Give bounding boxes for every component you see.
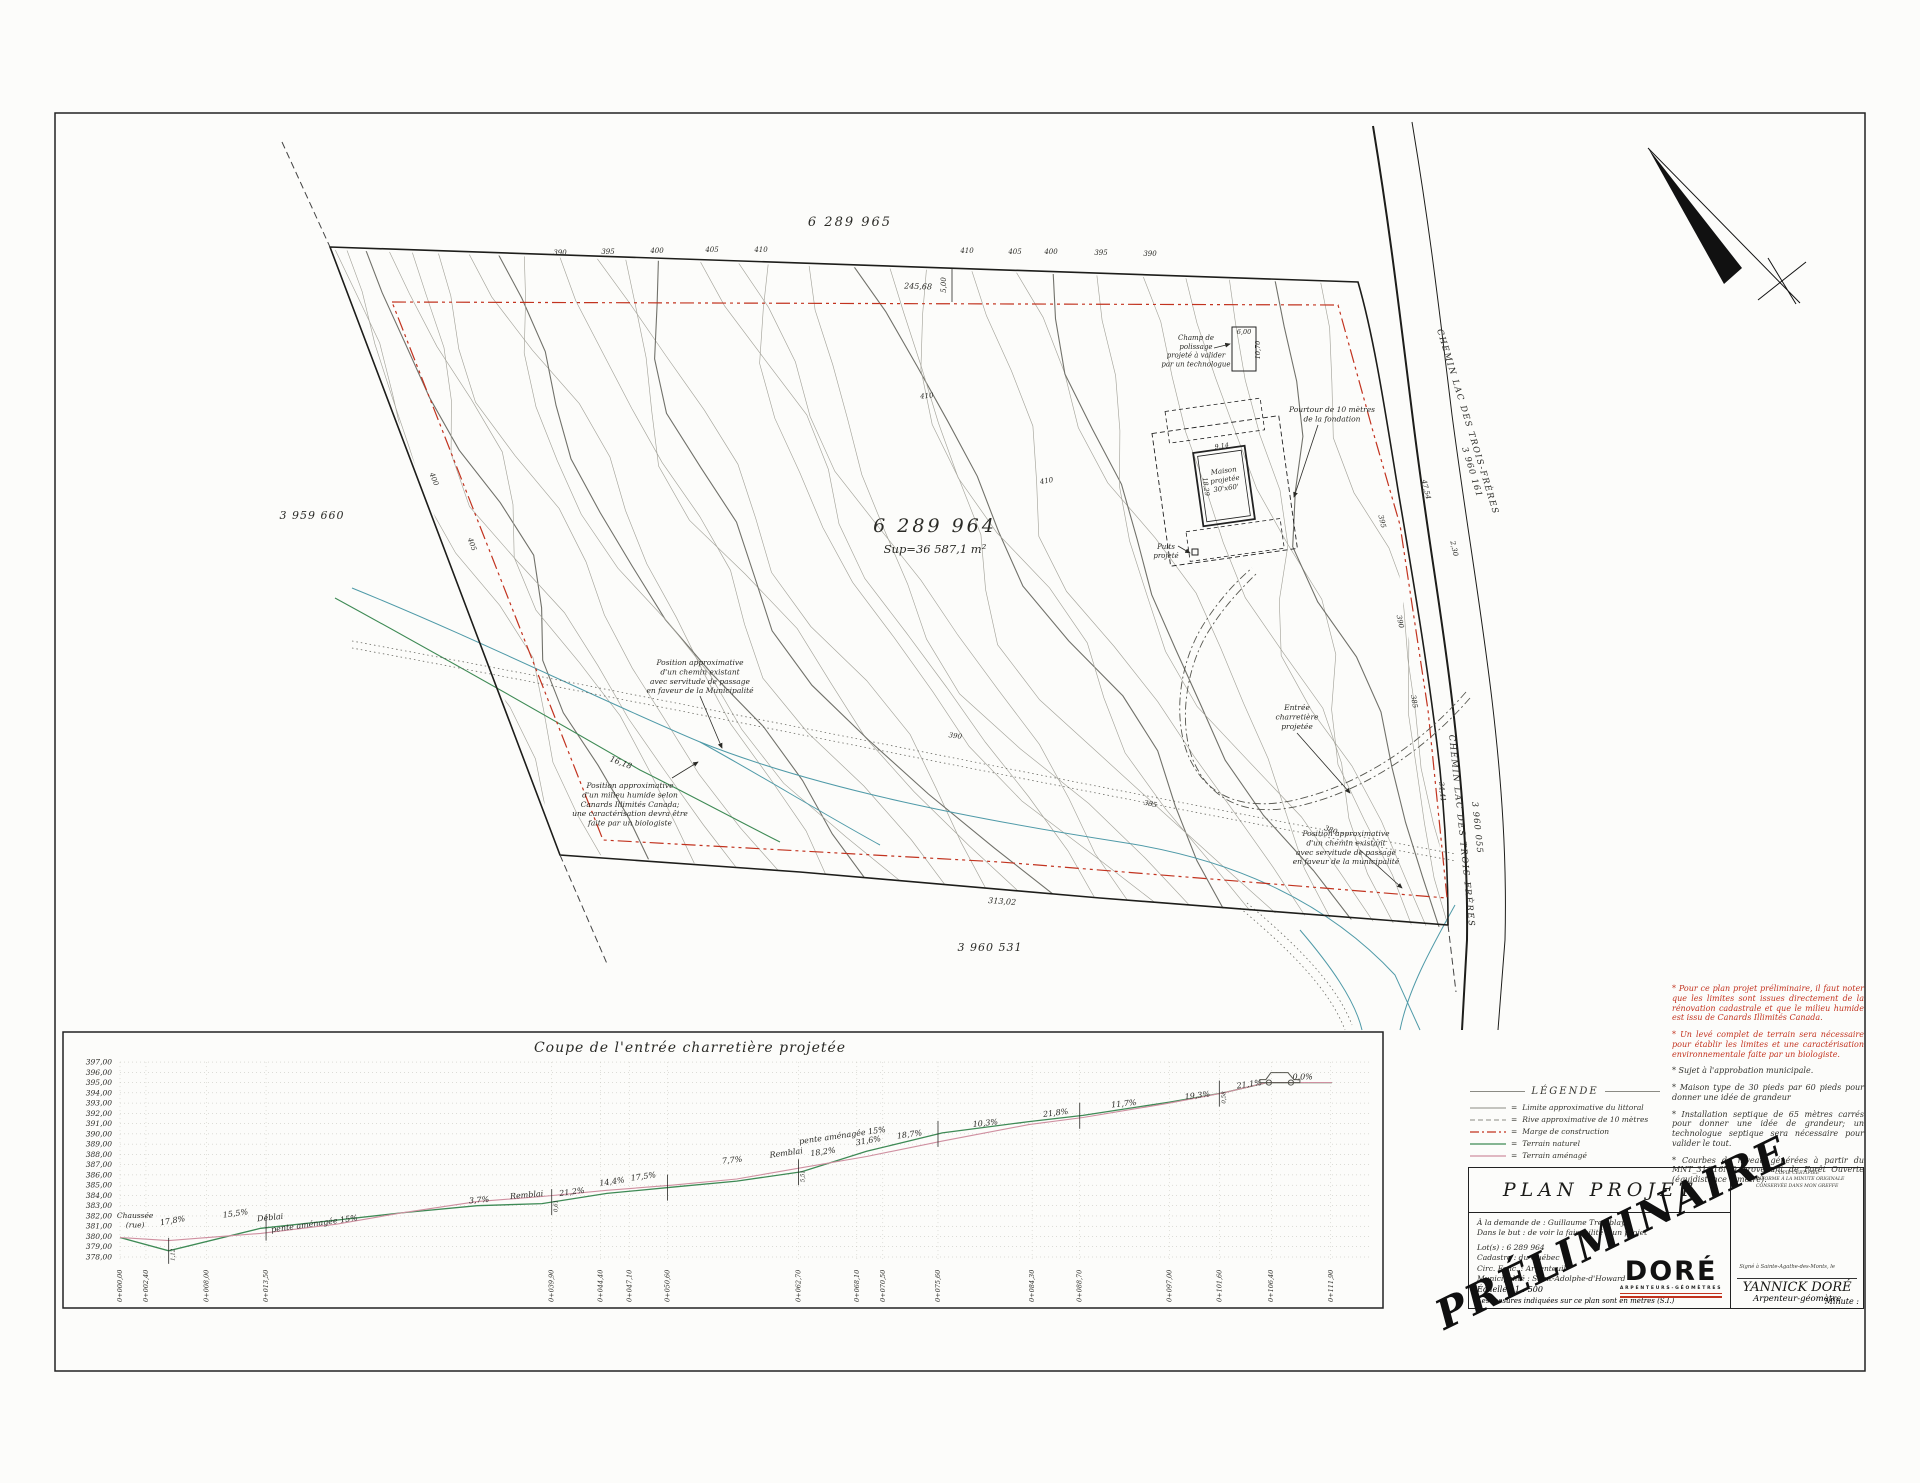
slope-label: 21,1% (1235, 1078, 1263, 1091)
legend-equals: = (1511, 1151, 1517, 1160)
contour-elevation-label: 390 (553, 249, 567, 257)
station-label: 0+039,90 (548, 1270, 556, 1302)
legend-swatch (1470, 1105, 1506, 1111)
slope-label: pente aménagée 15% (270, 1213, 358, 1234)
label-projected-house: Maisonprojetée30'x60' (1209, 465, 1242, 494)
profile-title: Coupe de l'entrée charretière projetée (534, 1040, 846, 1056)
contour-elevation-label: 400 (427, 471, 440, 488)
y-axis-label: 381,00 (86, 1222, 112, 1231)
contour-elevation-label: 405 (465, 536, 478, 553)
note-polishing-field: Champ depolissageprojeté à validerpar un… (1161, 334, 1230, 368)
streams (352, 588, 1455, 1030)
contour-elevation-label: 390 (1395, 614, 1406, 629)
note-red: * Pour ce plan projet préliminaire, il f… (1672, 984, 1864, 1023)
y-axis-label: 379,00 (86, 1242, 112, 1251)
dimension-label: 6,00 (1237, 328, 1251, 336)
dimension-label: 18,29 (1201, 477, 1212, 497)
slope-label: 18,2% (810, 1146, 837, 1159)
legend-swatch (1470, 1153, 1506, 1159)
title-block-left: PLAN PROJET À la demande de : Guillaume … (1469, 1168, 1731, 1308)
leader-arrows (672, 344, 1402, 888)
logo-text: DORÉ (1620, 1258, 1722, 1285)
slope-label: Remblai (768, 1146, 804, 1160)
station-label: 0+000,00 (116, 1270, 124, 1302)
title-block-right: COPIE CERTIFIÉE CONFORME À LA MINUTE ORI… (1731, 1168, 1863, 1308)
dimension-label: 16,18 (609, 754, 634, 771)
info-lot: Lot(s) : 6 289 964 (1477, 1243, 1730, 1253)
y-axis-label: 395,00 (86, 1078, 112, 1087)
dimension-label: 245,68 (903, 281, 932, 291)
y-axis-label: 396,00 (86, 1068, 112, 1077)
note: * Installation septique de 65 mètres car… (1672, 1110, 1864, 1149)
lot-label-3960531: 3 960 531 (958, 941, 1023, 954)
legend: LÉGENDE =Limite approximative du littora… (1470, 1086, 1660, 1163)
survey-plan-sheet: 6 289 9656 289 964Sup=36 587,1 m²3 959 6… (0, 0, 1920, 1483)
contour-elevation-label: 405 (1007, 248, 1022, 256)
slope-label: 15,5% (222, 1207, 249, 1220)
slope-label: 10,3% (972, 1117, 999, 1129)
well-symbol (1192, 549, 1198, 555)
profile-chart: Coupe de l'entrée charretière projetée37… (86, 1040, 1372, 1302)
y-axis-label: 390,00 (86, 1129, 112, 1138)
y-axis-label: 382,00 (86, 1211, 112, 1220)
y-axis-label: 388,00 (86, 1150, 112, 1159)
contour-elevation-label: 405 (704, 246, 719, 254)
station-label: 0+075,60 (934, 1270, 942, 1302)
legend-equals: = (1511, 1139, 1517, 1148)
legend-swatch (1470, 1141, 1506, 1147)
note-well: Puitsprojeté (1153, 543, 1178, 560)
contour-elevation-label: 395 (601, 248, 615, 256)
station-label: 0+002,40 (142, 1270, 150, 1302)
contour-elevation-label: 385 (1409, 694, 1419, 709)
dimension-label: 313,02 (988, 896, 1017, 907)
north-arrow-icon (1648, 148, 1806, 304)
note-existing-road-south: Position approximatived'un chemin exista… (1293, 829, 1400, 866)
station-label: 0+062,70 (794, 1270, 802, 1302)
station-label: 0+088,70 (1076, 1270, 1084, 1302)
projected-driveway (1180, 568, 1470, 810)
title-block: PLAN PROJET À la demande de : Guillaume … (1468, 1167, 1864, 1309)
y-axis-label: 387,00 (86, 1160, 112, 1169)
dimension-label: 2,30 (1448, 539, 1459, 557)
logo-subtext: ARPENTEURS-GÉOMÈTRES (1620, 1286, 1722, 1291)
dimension-label: 34,41 (1437, 781, 1447, 802)
legend-swatch (1470, 1129, 1506, 1135)
station-label: 0+044,40 (596, 1270, 604, 1302)
contour-elevation-label: 410 (1038, 476, 1054, 486)
contour-elevation-label: 410 (753, 246, 768, 254)
slope-label: 17,8% (159, 1214, 186, 1227)
contour-elevation-label: 395 (1094, 249, 1108, 257)
y-axis-label: 392,00 (86, 1109, 112, 1118)
slope-label: 7,7% (722, 1155, 744, 1166)
contour-elevation-label: 400 (1043, 248, 1058, 256)
note-driveway: Entréecharretièreprojetée (1276, 703, 1320, 731)
info-client: À la demande de : Guillaume Tremblay (1477, 1218, 1730, 1228)
map-labels: 6 289 9656 289 964Sup=36 587,1 m²3 959 6… (280, 215, 1503, 954)
slope-label: Remblai (509, 1189, 544, 1201)
plan-scale: Échelle : 1 : 500 (1477, 1285, 1543, 1294)
station-label: 0+013,50 (262, 1270, 270, 1302)
station-label: 0+047,10 (626, 1270, 634, 1302)
plan-title: PLAN PROJET (1469, 1168, 1730, 1213)
legend-equals: = (1511, 1127, 1517, 1136)
slope-label: 3,7% (469, 1195, 490, 1205)
contour-elevation-label: 400 (649, 247, 664, 255)
legend-title: LÉGENDE (1470, 1086, 1660, 1097)
dimension-label: 5,00 (940, 277, 948, 293)
contour-elevation-label: 395 (1376, 514, 1387, 529)
info-purpose: Dans le but : de voir la faisabilité d'u… (1477, 1228, 1730, 1238)
slope-label: 19,3% (1184, 1089, 1211, 1101)
contour-elevation-label: 410 (959, 247, 974, 255)
green-boundary-line (335, 598, 780, 842)
slope-label: 17,5% (630, 1170, 657, 1183)
certification-text: COPIE CERTIFIÉE CONFORME À LA MINUTE ORI… (1731, 1171, 1863, 1190)
legend-equals: = (1511, 1115, 1517, 1124)
y-axis-label: 397,00 (86, 1058, 112, 1067)
station-label: 0+070,50 (879, 1270, 887, 1302)
contour-line (409, 242, 744, 878)
boundary-extensions (282, 142, 1456, 992)
legend-item: =Terrain naturel (1470, 1139, 1660, 1148)
y-axis-label: 378,00 (86, 1253, 112, 1262)
lot-label-3959660: 3 959 660 (280, 509, 345, 522)
y-axis-label: 393,00 (86, 1099, 112, 1108)
road-name-upper: CHEMIN LAC DES TROIS-FRÈRES (1434, 327, 1502, 516)
legend-label: Rive approximative de 10 mètres (1522, 1115, 1648, 1124)
note: * Maison type de 30 pieds par 60 pieds p… (1672, 1083, 1864, 1103)
grade-break-value: 5,51 (800, 1170, 806, 1182)
station-label: 0+106,40 (1267, 1270, 1275, 1302)
signature-line (1737, 1278, 1857, 1279)
slope-label: 0,0% (1292, 1073, 1313, 1082)
lot-label-6289964: 6 289 964 (873, 515, 997, 537)
note: * Sujet à l'approbation municipale. (1672, 1066, 1864, 1076)
station-label: 0+084,30 (1028, 1270, 1036, 1302)
slope-label: 21,2% (558, 1186, 586, 1199)
legend-label: Terrain aménagé (1522, 1151, 1587, 1160)
station-label: 0+068,10 (853, 1270, 861, 1302)
slope-label: 14,4% (599, 1175, 626, 1188)
contour-line (362, 240, 654, 870)
legend-label: Limite approximative du littoral (1522, 1103, 1643, 1112)
legend-item: =Terrain aménagé (1470, 1151, 1660, 1160)
grade-break-value: 0,61 (554, 1200, 560, 1212)
plan-units: Les mesures indiquées sur ce plan sont e… (1477, 1297, 1674, 1305)
lot-area-label: Sup=36 587,1 m² (884, 542, 987, 556)
y-axis-label: 386,00 (86, 1170, 112, 1179)
y-axis-label: 385,00 (86, 1181, 112, 1190)
contour-line (624, 249, 1028, 900)
profile-panel-frame (63, 1032, 1383, 1308)
y-axis-label: 384,00 (86, 1191, 112, 1200)
lot-boundary (330, 247, 1448, 925)
road-lot-3960055: 3 960 055 (1469, 801, 1484, 854)
legend-equals: = (1511, 1103, 1517, 1112)
grade-break-value: 1,12 (171, 1248, 177, 1261)
grade-break-value: 0,58 (1221, 1091, 1227, 1104)
y-axis-label: 380,00 (86, 1232, 112, 1241)
signed-at: Signé à Sainte-Agathe-des-Monts, le (1739, 1264, 1857, 1270)
station-label: 0+101,60 (1215, 1270, 1223, 1302)
surveyor-name: YANNICK DORÉ (1731, 1280, 1863, 1295)
station-label: 0+008,00 (203, 1270, 211, 1302)
contour-line (655, 250, 1064, 903)
contour-elevation-label: 390 (1143, 250, 1157, 258)
minute-label: Minute : (1825, 1297, 1859, 1306)
slope-label: Déblai (256, 1212, 284, 1224)
notes-block: * Pour ce plan projet préliminaire, il f… (1672, 984, 1864, 1192)
contour-line (343, 239, 607, 866)
contour-elevation-label: 390 (948, 731, 963, 741)
contour-elevation-label: 410 (919, 391, 935, 400)
legend-label: Marge de construction (1522, 1127, 1609, 1136)
note-red: * Un levé complet de terrain sera nécess… (1672, 1030, 1864, 1059)
legend-item: =Limite approximative du littoral (1470, 1103, 1660, 1112)
legend-item: =Rive approximative de 10 mètres (1470, 1115, 1660, 1124)
station-label: 0+050,60 (663, 1270, 671, 1302)
contour-elevation-label: 385 (1143, 799, 1158, 810)
dimension-label: 9,14 (1214, 441, 1229, 451)
y-axis-label: 383,00 (86, 1201, 112, 1210)
logo-rule (1620, 1293, 1722, 1298)
note-existing-road: Position approximatived'un chemin exista… (646, 658, 754, 695)
legend-item: =Marge de construction (1470, 1127, 1660, 1136)
y-axis-label: 394,00 (86, 1088, 112, 1097)
chaussee-label: Chaussée(rue) (117, 1211, 154, 1229)
note-wetland: Position approximatived'un milieu humide… (572, 781, 688, 828)
lot-label-6289965: 6 289 965 (808, 215, 892, 230)
construction-margin-line (392, 302, 1447, 898)
station-label: 0+097,00 (1166, 1270, 1174, 1302)
y-axis-label: 391,00 (86, 1119, 112, 1128)
station-label: 0+111,90 (1327, 1270, 1335, 1302)
contour-line (808, 255, 1197, 913)
contour-line (921, 259, 1283, 920)
y-axis-label: 389,00 (86, 1140, 112, 1149)
dore-logo: DORÉ ARPENTEURS-GÉOMÈTRES (1620, 1258, 1722, 1298)
legend-label: Terrain naturel (1522, 1139, 1580, 1148)
legend-swatch (1470, 1117, 1506, 1123)
contour-lines (330, 239, 1455, 933)
dimension-label: 10,70 (1254, 341, 1262, 360)
